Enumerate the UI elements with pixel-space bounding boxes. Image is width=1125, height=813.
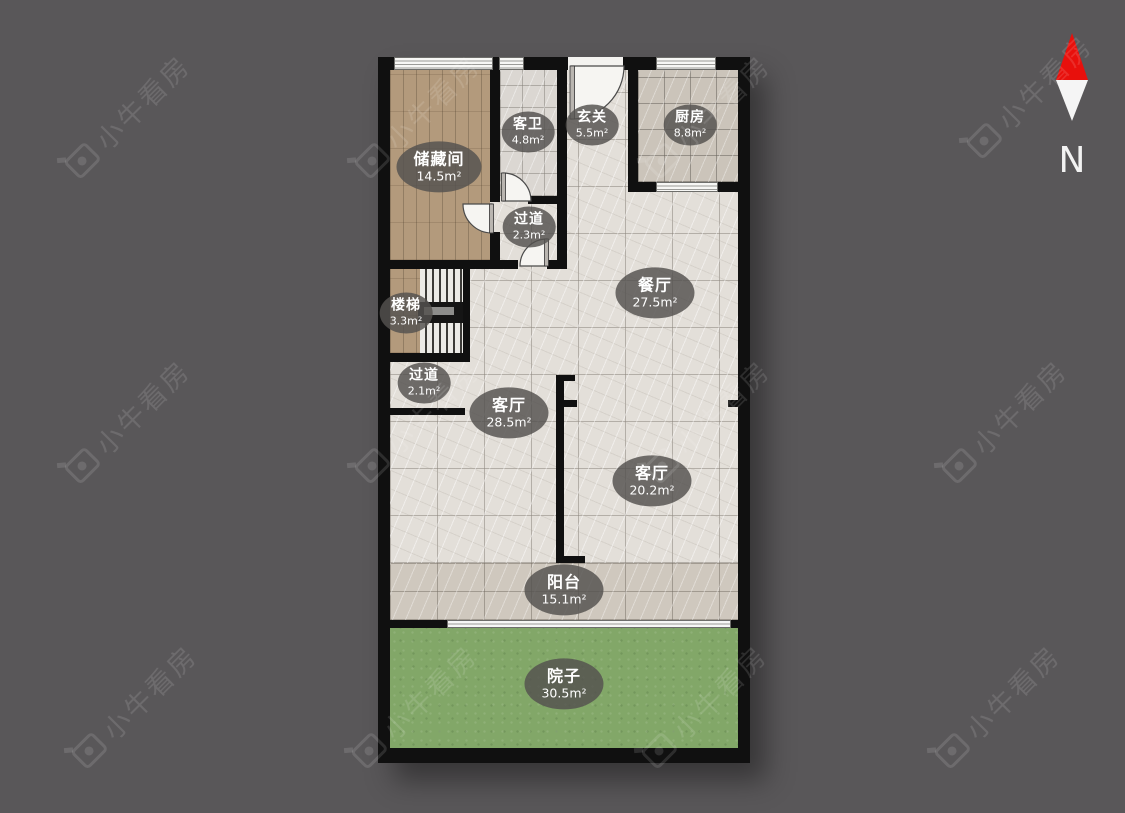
bath-door — [501, 171, 532, 203]
window-storage — [395, 58, 492, 69]
wall-kitchen-bottom-left — [628, 182, 657, 192]
wall-exterior-left — [378, 57, 390, 763]
wall-kitchen-left — [628, 70, 638, 192]
cow-logo-icon — [933, 731, 972, 770]
window-kitchen — [657, 58, 715, 69]
room-label-living-east: 客厅 20.2m² — [612, 455, 691, 506]
watermark: 小牛看房 — [58, 45, 198, 185]
north-arrow-white-icon — [1056, 80, 1088, 121]
room-label-yard: 院子 30.5m² — [524, 658, 603, 709]
wall-exterior-right — [738, 57, 750, 763]
room-label-kitchen: 厨房 8.8m² — [664, 105, 717, 146]
watermark: 小牛看房 — [65, 635, 205, 775]
storage-door — [462, 203, 494, 235]
cow-logo-icon — [965, 121, 1004, 160]
room-label-living-west: 客厅 28.5m² — [469, 387, 548, 438]
wall-living-divider-foot — [556, 556, 585, 563]
wall-stairs-bottom — [378, 353, 470, 362]
cow-logo-icon — [63, 446, 102, 485]
compass-icon: N — [1040, 26, 1104, 166]
watermark: 小牛看房 — [935, 350, 1075, 490]
cow-logo-icon — [940, 446, 979, 485]
north-arrow-red-icon — [1056, 33, 1088, 80]
wall-stairs-right — [463, 269, 470, 360]
wall-storage-right-upper — [490, 70, 500, 202]
room-label-stairs: 楼梯 3.3m² — [380, 293, 433, 334]
wall-living-divider — [556, 375, 564, 563]
floorplan-canvas: 储藏间 14.5m² 客卫 4.8m² 玄关 5.5m² 厨房 8.8m² 过道… — [0, 0, 1125, 813]
wall-yard-right-cap — [730, 620, 738, 628]
wall-bath-right — [557, 70, 567, 269]
wall-right-stub — [728, 400, 738, 407]
wall-living-divider-cap — [556, 375, 575, 381]
compass-n-label: N — [1059, 143, 1086, 179]
room-label-entry-hall: 玄关 5.5m² — [566, 105, 619, 146]
floorplan: 储藏间 14.5m² 客卫 4.8m² 玄关 5.5m² 厨房 8.8m² 过道… — [378, 57, 750, 763]
wall-bath-corridor-divider — [528, 196, 567, 204]
wall-yard-left — [390, 620, 448, 628]
cow-logo-icon — [63, 141, 102, 180]
watermark: 小牛看房 — [928, 635, 1068, 775]
room-label-storage: 储藏间 14.5m² — [396, 141, 481, 192]
watermark: 小牛看房 — [58, 350, 198, 490]
room-label-corridor-lower: 过道 2.1m² — [398, 363, 451, 404]
wall-living-divider-stub — [564, 400, 577, 407]
wall-corridor-bottom — [547, 260, 567, 269]
stairs-lower-flight — [420, 323, 465, 353]
yard-sliding-door — [448, 621, 730, 627]
room-label-guest-bath: 客卫 4.8m² — [502, 112, 555, 153]
room-label-balcony: 阳台 15.1m² — [524, 564, 603, 615]
room-label-corridor-upper: 过道 2.3m² — [503, 207, 556, 248]
kitchen-sliding-opening — [657, 183, 717, 191]
cow-logo-icon — [70, 731, 109, 770]
wall-kitchen-bottom-right — [717, 182, 738, 192]
stairs-upper-flight — [420, 269, 465, 302]
wall-storage-bottom — [378, 260, 518, 269]
wall-exterior-bottom — [378, 748, 750, 763]
wall-corridor-lower — [390, 408, 465, 415]
window-bath — [500, 58, 523, 69]
room-label-dining: 餐厅 27.5m² — [615, 267, 694, 318]
